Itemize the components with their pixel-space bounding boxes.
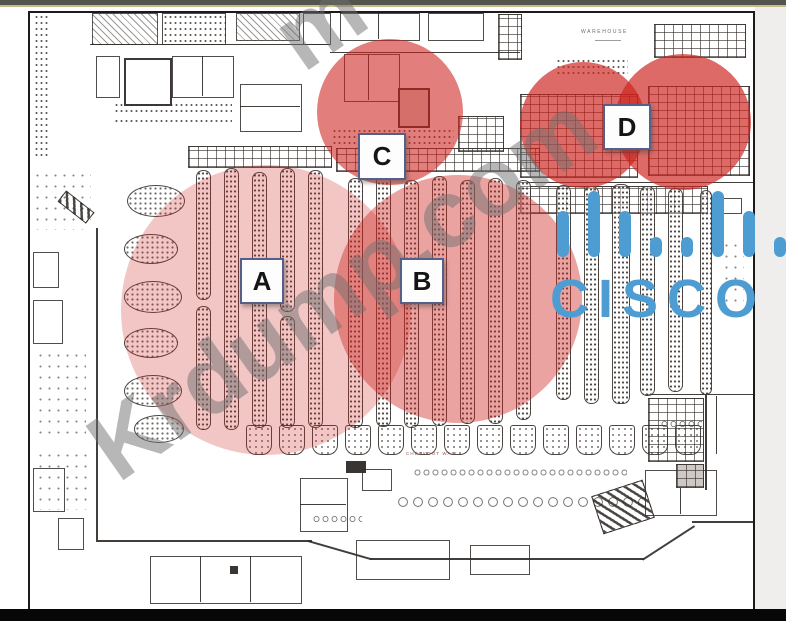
plan-wall <box>300 504 346 505</box>
plan-service-desk <box>676 464 704 488</box>
plan-checkout-stand <box>345 425 371 455</box>
plan-room <box>33 252 59 288</box>
plan-wall <box>645 394 753 395</box>
plan-fixture <box>230 566 238 574</box>
plan-checkout-stand <box>543 425 569 455</box>
plan-room <box>172 56 234 98</box>
plan-room <box>300 478 348 532</box>
plan-room <box>428 13 484 41</box>
plan-rack-grid <box>498 14 522 60</box>
plan-counter <box>114 102 232 112</box>
zone-label-c[interactable]: C <box>358 133 406 180</box>
plan-conveyor <box>413 464 627 481</box>
plan-fixtures <box>33 170 91 230</box>
plan-rack-grid <box>648 398 704 462</box>
zone-label-a[interactable]: A <box>240 258 284 304</box>
cisco-logo-bar <box>557 211 569 257</box>
plan-room <box>356 540 450 580</box>
zone-label-b[interactable]: B <box>400 258 444 304</box>
plan-checkout-stand <box>510 425 536 455</box>
cisco-logo-bar <box>712 191 724 257</box>
bottom-black-bar <box>0 609 786 621</box>
cisco-logo-bar <box>619 211 631 257</box>
plan-wall <box>240 106 300 107</box>
cisco-logo-wordmark: CISCO <box>550 272 766 326</box>
plan-table-row <box>660 418 702 430</box>
plan-room <box>470 545 530 575</box>
plan-checkout-stand <box>378 425 404 455</box>
plan-checkout-stand <box>477 425 503 455</box>
plan-wall <box>250 556 251 602</box>
plan-room <box>124 58 172 106</box>
warehouse-label: WAREHOUSE <box>581 29 628 35</box>
zone-label-d-text: D <box>618 112 637 143</box>
plan-room <box>92 13 158 45</box>
screenshot-stage: WAREHOUSE <box>0 0 786 621</box>
plan-checkout-stand <box>609 425 635 455</box>
plan-counter <box>114 118 232 126</box>
plan-wall <box>200 556 201 602</box>
plan-fixtures <box>36 450 88 510</box>
cisco-logo-bar <box>681 237 693 257</box>
plan-room <box>150 556 302 604</box>
zone-label-c-text: C <box>373 141 392 172</box>
plan-checkout-stand <box>576 425 602 455</box>
cisco-logo-bar <box>588 191 600 257</box>
zone-label-d[interactable]: D <box>603 104 651 150</box>
plan-room <box>362 469 392 491</box>
plan-wall <box>692 521 753 523</box>
plan-room <box>162 13 226 45</box>
checkout-wall-label: CHECKOUT WALL <box>406 451 459 456</box>
plan-rack-grid <box>654 24 746 58</box>
plan-dot-strip <box>34 14 48 160</box>
plan-wall <box>96 540 312 542</box>
top-accent-line <box>0 5 786 7</box>
plan-wall <box>595 40 621 41</box>
zone-label-b-text: B <box>413 266 432 297</box>
zone-label-a-text: A <box>253 266 272 297</box>
plan-room <box>33 300 63 344</box>
plan-wall <box>202 56 203 96</box>
cisco-logo-bar <box>743 211 755 257</box>
cisco-logo-bar <box>650 237 662 257</box>
plan-wall <box>716 396 717 454</box>
plan-room <box>96 56 120 98</box>
plan-room <box>240 84 302 132</box>
cisco-logo-bar <box>774 237 786 257</box>
plan-wall <box>96 228 98 540</box>
plan-room <box>58 518 84 550</box>
